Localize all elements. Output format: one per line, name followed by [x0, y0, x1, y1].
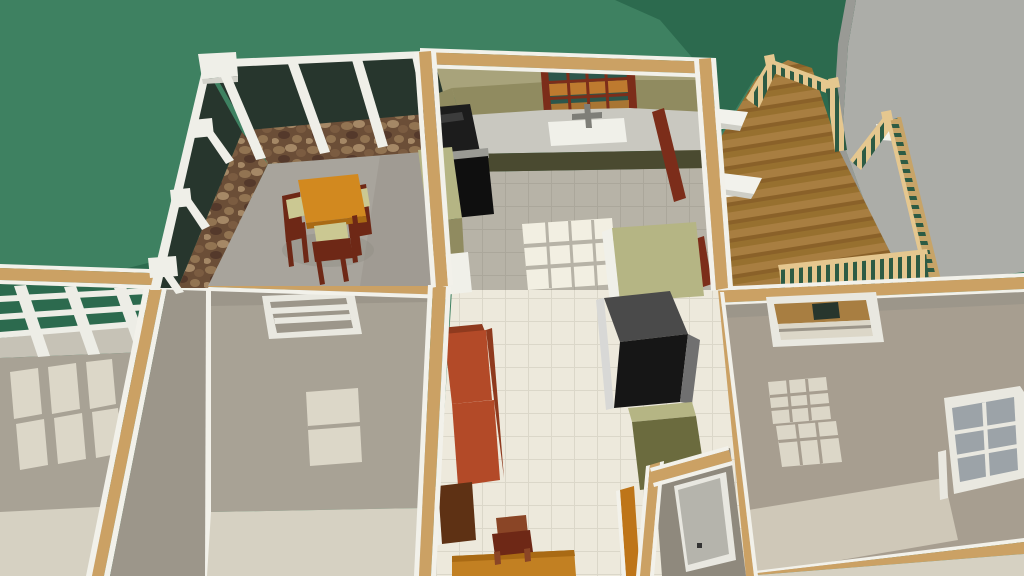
- light-patch: [16, 419, 48, 470]
- porch-corner-post-cap: [198, 52, 238, 79]
- refrigerator-front: [614, 334, 688, 408]
- pergola: [0, 284, 148, 358]
- light-patch: [54, 413, 86, 464]
- light-patch: [86, 359, 116, 409]
- render-stage: [0, 0, 1024, 576]
- light-patch: [48, 363, 80, 414]
- window-pane-dark: [812, 302, 840, 320]
- light-patch: [10, 368, 42, 419]
- right-room-top-window: [766, 292, 884, 347]
- kitchen-island-top: [612, 222, 704, 302]
- door-handle: [697, 543, 702, 548]
- light-patch: [776, 421, 842, 467]
- red-hutch-upper: [444, 330, 492, 404]
- 3d-viewport[interactable]: [0, 0, 1024, 576]
- chair-leg: [524, 548, 531, 562]
- kitchen-light-patch: [522, 218, 618, 290]
- middle-room-window: [262, 292, 362, 339]
- dining-chair: [312, 238, 353, 262]
- railing-post-cap: [881, 110, 893, 122]
- middle-room-floor-light: [207, 508, 424, 576]
- light-patch: [768, 377, 831, 424]
- dark-cabinet: [438, 482, 476, 544]
- railing-post-cap: [828, 77, 840, 89]
- red-hutch-lower: [452, 400, 500, 486]
- upper-cabinets-right: [626, 80, 706, 112]
- railing-post-cap: [764, 54, 776, 66]
- chair-leg: [494, 551, 501, 565]
